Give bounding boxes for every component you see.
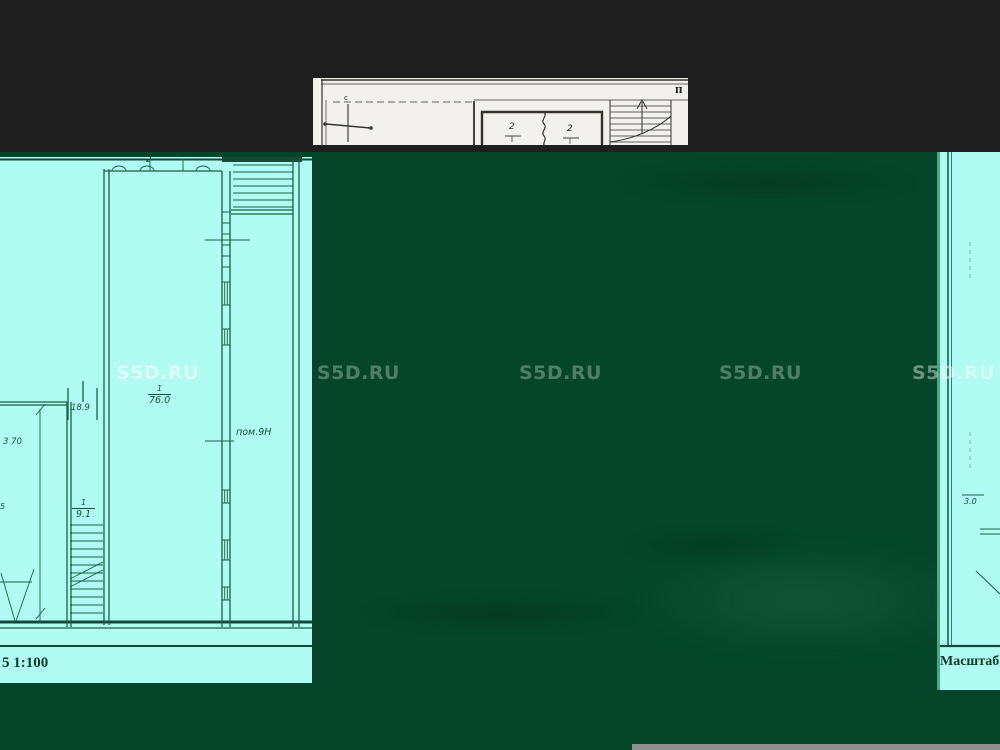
right-plan-fragment: 3.0 Масштаб xyxy=(937,152,1000,690)
overlay-smudge xyxy=(630,542,980,657)
stair-area-label: 1 9.1 xyxy=(72,498,95,521)
room-number: 1 xyxy=(72,498,95,509)
left-plan-fragment: 2 1 76.0 пом.9Н 18.9 3 70 1 9.1 5 5 1:10… xyxy=(0,157,312,683)
scale-label: Масштаб xyxy=(940,654,999,670)
room-number: 2 xyxy=(567,125,573,134)
scale-label: 5 1:100 xyxy=(2,655,48,672)
horizontal-scrollbar[interactable] xyxy=(632,744,1000,750)
overlay-smudge xyxy=(620,530,810,560)
compass-north-label: с xyxy=(344,95,348,102)
dimension-label: 18.9 xyxy=(71,404,90,413)
corner-letter: п xyxy=(675,82,683,95)
screenshot-root: п с 2 2 xyxy=(0,0,1000,750)
room-number-top: 2 xyxy=(146,157,152,166)
dimension-label: 3.0 xyxy=(964,498,977,507)
room-name-label: пом.9Н xyxy=(236,428,271,438)
overlay-smudge xyxy=(612,164,922,200)
top-plan-drawing xyxy=(313,78,688,145)
room-area: 9.1 xyxy=(76,509,91,521)
overlay-smudge xyxy=(355,597,645,629)
room-area: 76.0 xyxy=(149,395,170,407)
right-plan-drawing xyxy=(940,152,1000,690)
left-plan-drawing xyxy=(0,157,312,683)
dimension-label: 3 70 xyxy=(3,438,22,447)
room-number: 1 xyxy=(148,384,171,395)
top-plan-fragment: п с 2 2 xyxy=(313,78,688,145)
edge-dimension: 5 xyxy=(0,503,5,512)
room-area-label: 1 76.0 xyxy=(148,384,171,407)
room-number: 2 xyxy=(509,123,515,132)
